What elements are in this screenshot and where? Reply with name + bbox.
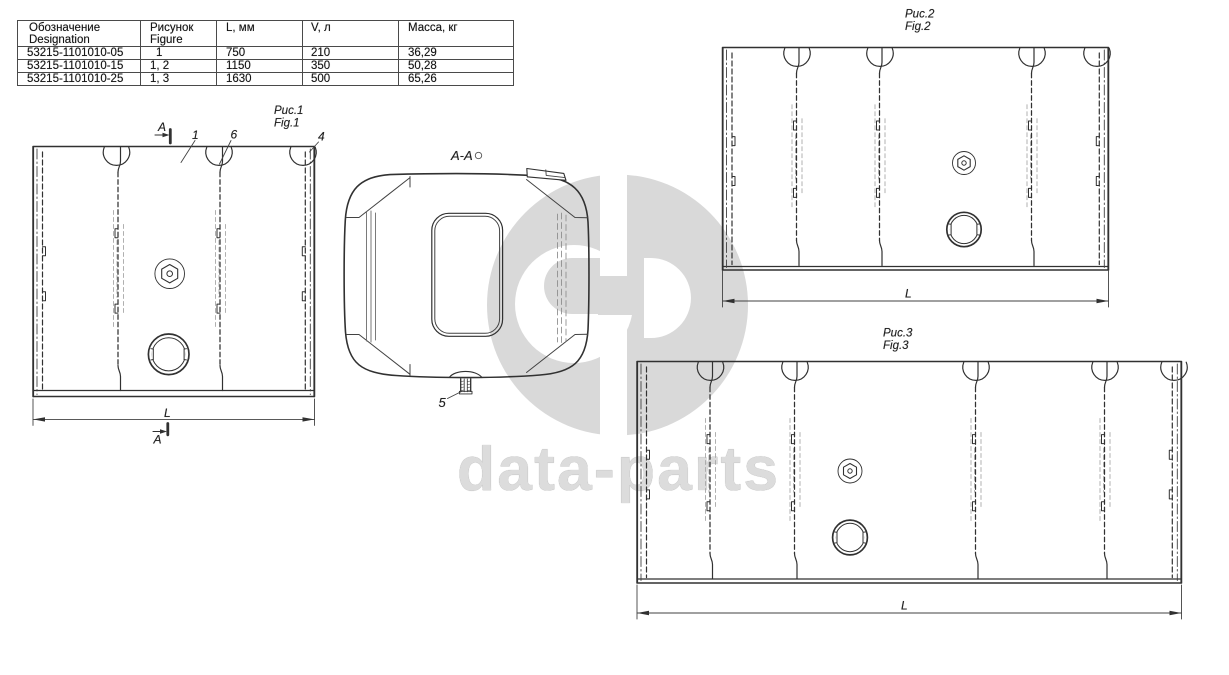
svg-text:L: L xyxy=(901,599,908,613)
svg-text:A-A: A-A xyxy=(450,148,473,163)
svg-text:Fig.1: Fig.1 xyxy=(274,118,300,130)
svg-text:1: 1 xyxy=(192,128,199,142)
svg-text:A: A xyxy=(153,433,162,447)
svg-text:Fig.3: Fig.3 xyxy=(883,340,909,352)
svg-text:A: A xyxy=(157,120,166,134)
svg-text:4: 4 xyxy=(318,130,325,144)
svg-text:L: L xyxy=(164,406,171,420)
svg-text:6: 6 xyxy=(231,128,238,142)
svg-text:L: L xyxy=(905,287,912,301)
svg-text:Рис.3: Рис.3 xyxy=(883,328,913,340)
svg-text:5: 5 xyxy=(439,395,447,410)
svg-text:Fig.2: Fig.2 xyxy=(905,21,931,33)
svg-text:Рис.2: Рис.2 xyxy=(905,9,935,21)
svg-text:Рис.1: Рис.1 xyxy=(274,105,303,117)
